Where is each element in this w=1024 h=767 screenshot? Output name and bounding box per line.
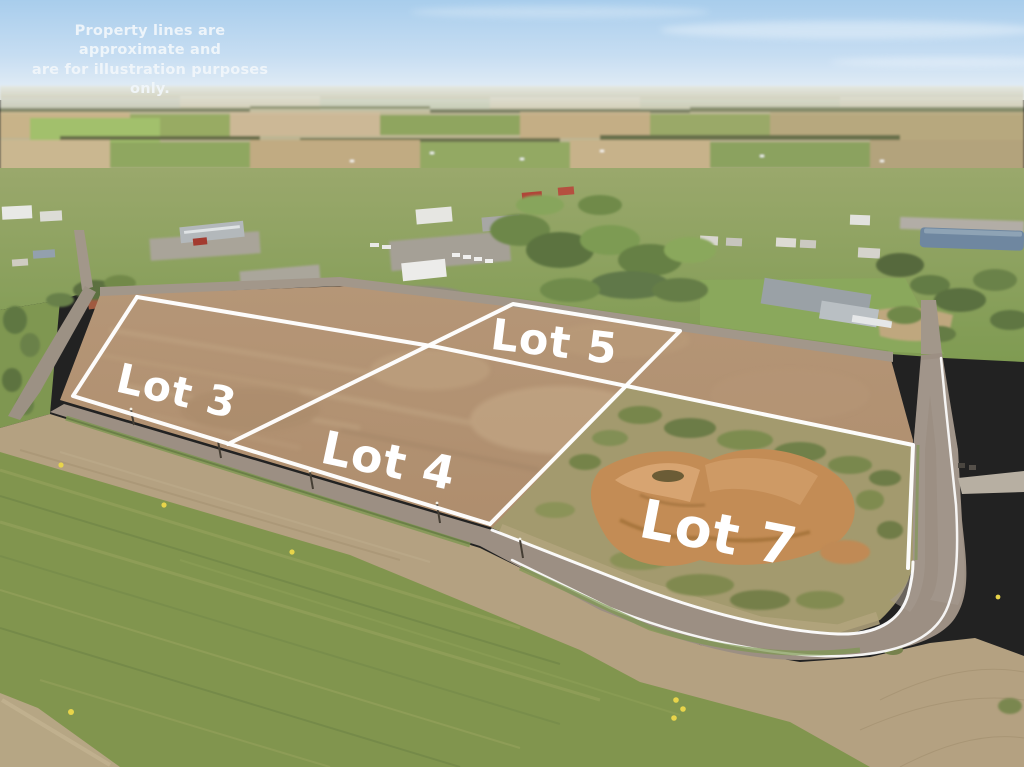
disclaimer-line-2: are for illustration purposes only. bbox=[24, 61, 276, 100]
disclaimer-line-1: Property lines are approximate and bbox=[24, 22, 276, 61]
distant-farmland bbox=[0, 86, 1024, 181]
pond bbox=[920, 227, 1024, 251]
aerial-photo: Lot 3 Lot 4 Lot 5 Lot 7 Property lines a… bbox=[0, 0, 1024, 767]
disclaimer-text: Property lines are approximate and are f… bbox=[24, 22, 276, 99]
aerial-photo-scene: Lot 3 Lot 4 Lot 5 Lot 7 bbox=[0, 0, 1024, 767]
